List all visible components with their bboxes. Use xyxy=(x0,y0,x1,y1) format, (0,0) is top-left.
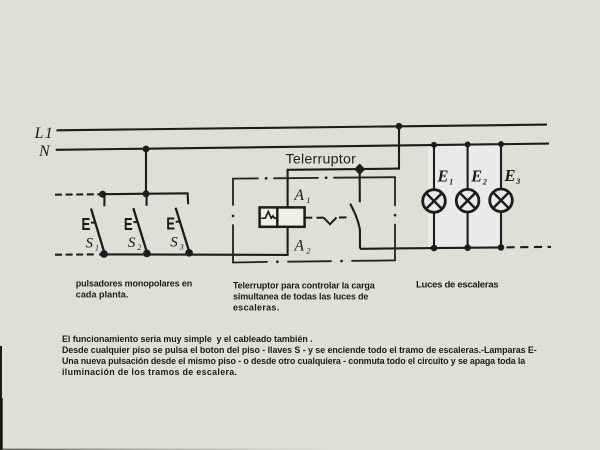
svg-text:E: E xyxy=(470,166,482,185)
svg-text:2: 2 xyxy=(306,246,311,256)
svg-text:Telerruptor: Telerruptor xyxy=(286,152,357,168)
svg-text:E: E xyxy=(166,213,175,233)
svg-text:Una nueva pulsación desde el m: Una nueva pulsación desde el mismo piso … xyxy=(62,356,525,366)
svg-text:A: A xyxy=(294,238,305,255)
svg-text:pulsadores monopolares en: pulsadores monopolares en xyxy=(76,278,192,288)
svg-text:simultanea de todas las luces: simultanea de todas las luces de xyxy=(233,292,368,302)
svg-text:Desde cualquier piso se pulsa: Desde cualquier piso se pulsa el boton d… xyxy=(62,345,537,355)
svg-text:L1: L1 xyxy=(34,125,54,142)
svg-text:Telerruptor para controlar la: Telerruptor para controlar la carga xyxy=(233,281,376,291)
svg-text:2: 2 xyxy=(482,177,487,186)
svg-text:Luces de escaleras: Luces de escaleras xyxy=(416,279,498,290)
svg-text:2: 2 xyxy=(137,243,141,252)
svg-text:S: S xyxy=(86,236,94,252)
svg-text:A: A xyxy=(294,187,305,204)
svg-text:iluminación de los tramos de e: iluminación de los tramos de escalera. xyxy=(62,367,237,377)
svg-text:E: E xyxy=(82,214,91,234)
svg-text:3: 3 xyxy=(515,177,520,186)
svg-text:escaleras.: escaleras. xyxy=(233,303,280,313)
svg-text:S: S xyxy=(128,235,136,251)
svg-text:N: N xyxy=(38,143,51,160)
svg-text:1: 1 xyxy=(306,195,310,205)
svg-text:1: 1 xyxy=(449,178,453,187)
svg-text:S: S xyxy=(170,235,178,251)
svg-text:cada planta.: cada planta. xyxy=(76,289,129,299)
svg-text:3: 3 xyxy=(179,243,184,252)
svg-text:El funcionamiento seria muy si: El funcionamiento seria muy simple y el … xyxy=(62,334,313,344)
svg-text:1: 1 xyxy=(95,244,99,253)
svg-text:E: E xyxy=(504,166,516,185)
svg-text:E: E xyxy=(437,167,449,186)
svg-text:E: E xyxy=(124,214,133,234)
